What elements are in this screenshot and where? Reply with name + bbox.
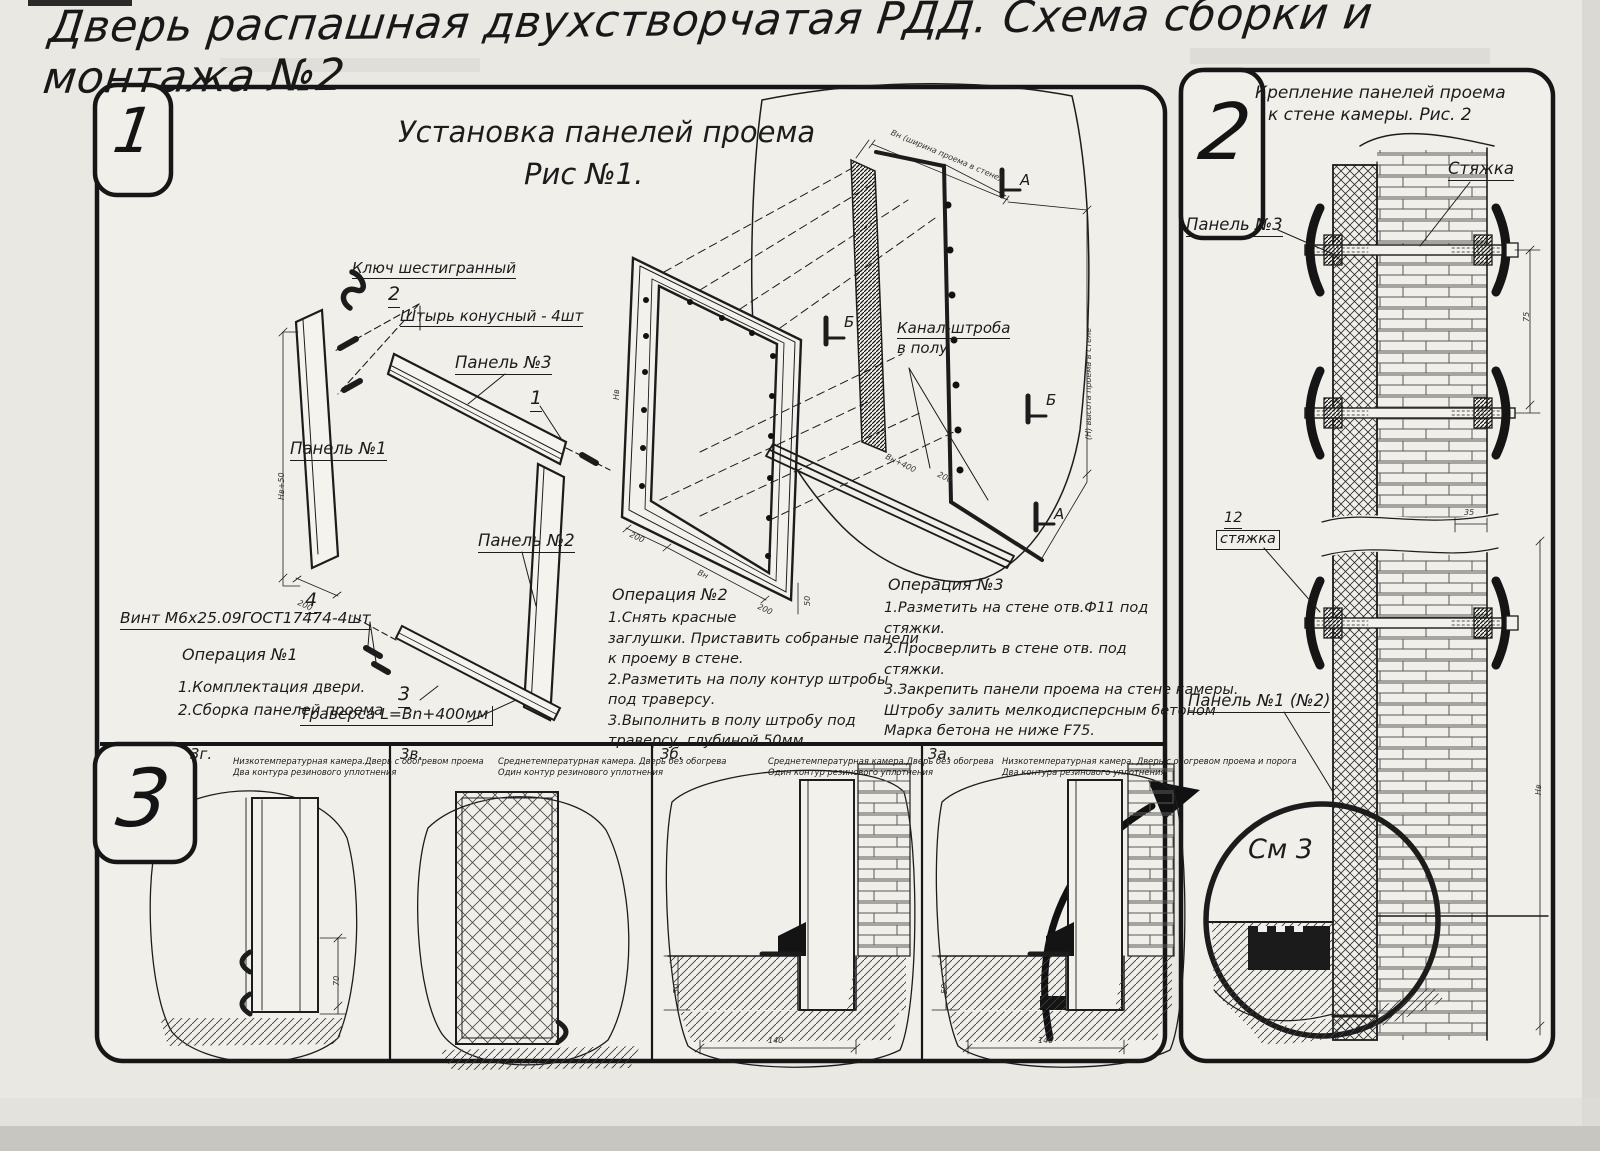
label-panel3-s2: Панель №3 <box>1186 216 1283 237</box>
dim-50-3a: 50 <box>940 984 949 994</box>
dim-140-3b: 140 <box>768 1036 783 1045</box>
marker-b-left: Б <box>844 314 854 331</box>
panel-3g-desc: Низкотемпературная камера.Дверь с обогре… <box>233 756 484 779</box>
label-screw: Винт М6х25.09ГОСТ17474-4шт <box>120 610 371 630</box>
panel-3a-code: 3а. <box>928 746 952 763</box>
panel-3g-code: 3г. <box>190 746 212 763</box>
position-2: 2 <box>388 284 400 308</box>
scanned-drawing-page: { "title": "Дверь распашная двухстворчат… <box>0 0 1600 1151</box>
label-panel3: Панель №3 <box>455 354 552 375</box>
dim-opening-height: (Н) высота проема в стене <box>1084 328 1093 440</box>
op1-body: 1.Комплектация двери. 2.Сборка панелей п… <box>178 676 383 723</box>
label-see-detail3: См 3 <box>1248 834 1313 865</box>
panel-3v-code: 3в. <box>400 746 423 763</box>
marker-a-bottom: А <box>1054 506 1064 523</box>
marker-b-right: Б <box>1046 392 1056 409</box>
label-channel-line2: в полу <box>897 340 948 357</box>
panel-3b-desc: Среднетемпературная камера.Дверь без обо… <box>768 756 994 779</box>
label-panel12: Панель №1 (№2) <box>1188 692 1330 713</box>
position-12: 12 <box>1224 510 1242 529</box>
dim-70-3g: 70 <box>332 976 341 986</box>
dim-hv50: Нв+50 <box>277 472 286 500</box>
marker-a-top: А <box>1020 172 1030 189</box>
section2-heading2: к стене камеры. Рис. 2 <box>1268 106 1472 126</box>
label-hex-key: Ключ шестигранный <box>352 260 516 279</box>
op3-body: 1.Разметить на стене отв.Ф11 под стяжки.… <box>884 598 1238 742</box>
dim-140-3a: 140 <box>1038 1036 1053 1045</box>
op2-title: Операция №2 <box>612 586 728 604</box>
op2-body: 1.Снять красные заглушки. Приставить соб… <box>608 608 919 752</box>
label-tie-small: стяжка <box>1216 530 1280 550</box>
dim-hv: Нв <box>612 389 621 400</box>
dim-75: 75 <box>1522 312 1531 322</box>
op3-title: Операция №3 <box>888 576 1004 594</box>
label-panel1: Панель №1 <box>290 440 387 461</box>
panel-3b-code: 3б. <box>660 746 684 763</box>
label-panel2: Панель №2 <box>478 532 575 553</box>
position-1: 1 <box>530 388 542 412</box>
section1-heading-fig: Рис №1. <box>524 158 643 191</box>
dim-35: 35 <box>1464 508 1474 517</box>
label-cone-pin: Штырь конусный - 4шт <box>400 308 583 327</box>
dim-50-3b: 50 <box>672 984 681 994</box>
drawing-linework <box>0 0 1600 1151</box>
panel-3v-desc: Среднетемпературная камера. Дверь без об… <box>498 756 726 779</box>
label-tie: Стяжка <box>1448 160 1514 181</box>
op1-title: Операция №1 <box>182 646 298 664</box>
panel-3a-desc: Низкотемпературная камера. Дверь с обогр… <box>1002 756 1297 779</box>
dim-50-frame: 50 <box>803 596 812 606</box>
section2-heading1: Крепление панелей проема <box>1255 84 1506 104</box>
label-channel-line1: Канал-штроба <box>897 320 1010 339</box>
section1-heading: Установка панелей проема <box>398 116 815 149</box>
dim-hv-s2: Нв <box>1534 784 1543 795</box>
